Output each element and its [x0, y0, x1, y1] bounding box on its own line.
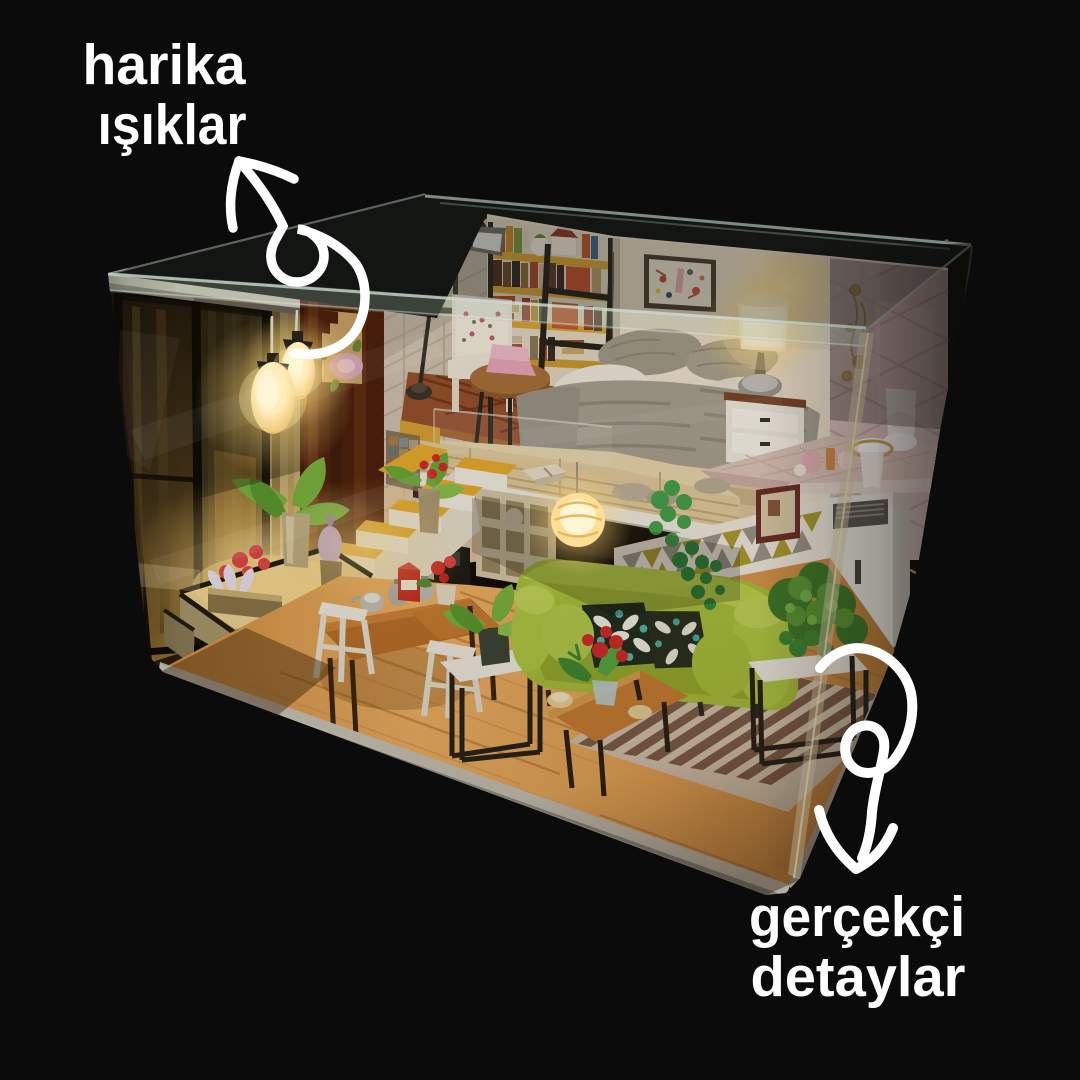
- svg-text:ışıklar: ışıklar: [98, 93, 247, 157]
- svg-text:gerçekçi: gerçekçi: [749, 885, 965, 949]
- svg-text:harika: harika: [83, 33, 247, 97]
- svg-text:detaylar: detaylar: [751, 945, 966, 1009]
